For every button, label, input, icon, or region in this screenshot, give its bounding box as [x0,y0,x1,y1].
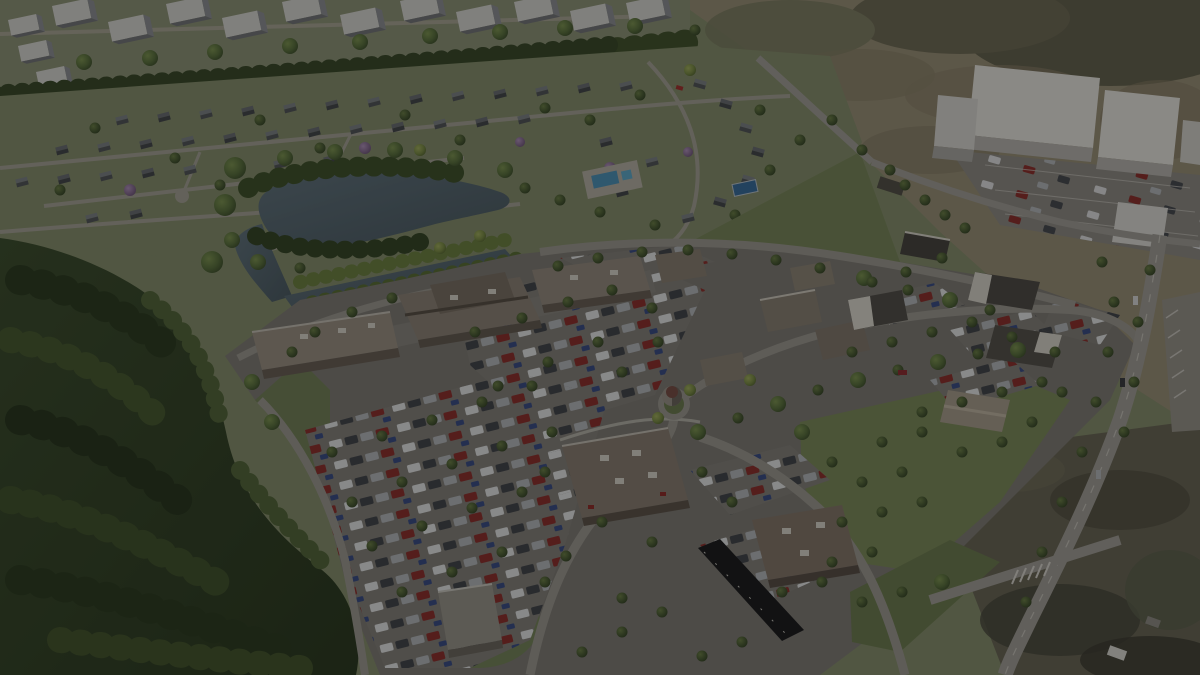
aerial-rendering [0,0,1200,675]
dark-overlay [0,0,1200,675]
aerial-rendering-hero [0,0,1200,675]
